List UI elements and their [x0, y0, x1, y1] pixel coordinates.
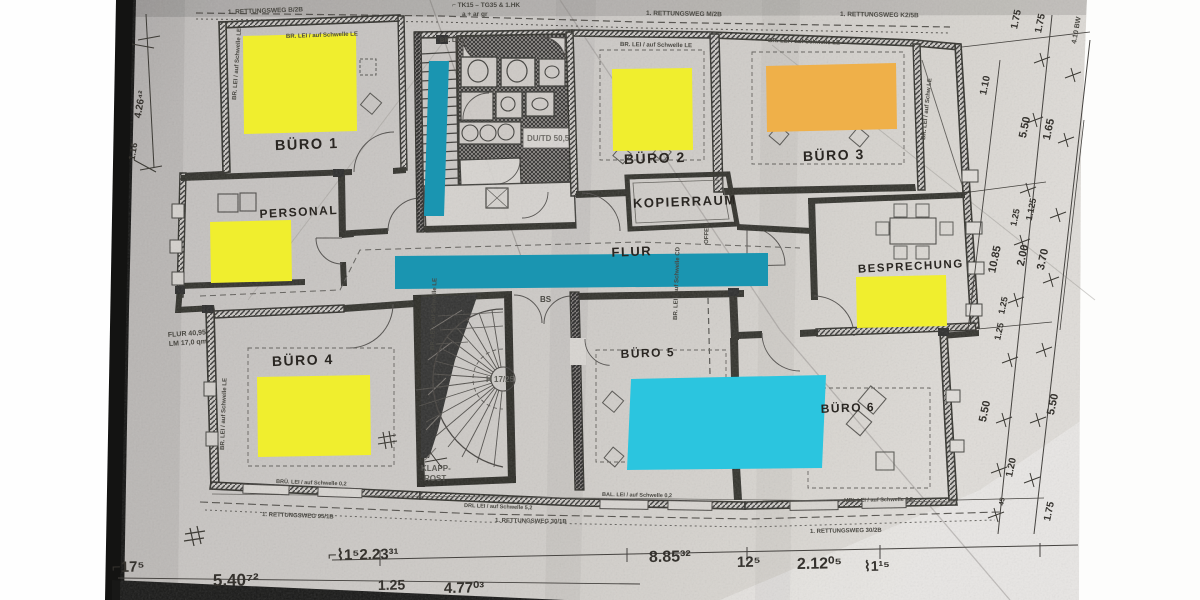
svg-text:BR. LEI: BR. LEI: [440, 38, 462, 44]
svg-text:BAL. LEI / auf Schwelle 0,2: BAL. LEI / auf Schwelle 0,2: [602, 492, 672, 499]
svg-text:⌐17⁵: ⌐17⁵: [112, 558, 145, 576]
svg-text:a + ar gr: a + ar gr: [462, 11, 488, 18]
svg-text:8.85³²: 8.85³²: [649, 548, 691, 566]
svg-text:1.25: 1.25: [378, 577, 406, 593]
svg-text:BS: BS: [540, 295, 552, 304]
svg-text:BR. LEI / auf Schwelle LE: BR. LEI / auf Schwelle LE: [620, 42, 692, 49]
svg-text:BÜRO 6: BÜRO 6: [820, 399, 875, 416]
svg-text:12⁵: 12⁵: [737, 554, 761, 571]
svg-text:⌐⌇1⁵2.23³¹: ⌐⌇1⁵2.23³¹: [328, 546, 399, 564]
svg-text:BÜRO 4: BÜRO 4: [272, 351, 334, 369]
svg-text:FLUR: FLUR: [611, 243, 652, 259]
svg-text:BÜRO 2: BÜRO 2: [624, 149, 686, 167]
svg-text:MBL LEI / auf Schwelle 0,2: MBL LEI / auf Schwelle 0,2: [844, 497, 913, 504]
svg-text:1. RETTUNGSWEG 30/2B: 1. RETTUNGSWEG 30/2B: [810, 528, 882, 535]
svg-text:OFFEN: OFFEN: [704, 224, 711, 245]
svg-text:⌇1¹⁵: ⌇1¹⁵: [864, 558, 890, 574]
svg-text:4.77⁰³: 4.77⁰³: [444, 579, 484, 597]
svg-text:⌐ TK15 – TG35 & 1.HK: ⌐ TK15 – TG35 & 1.HK: [452, 2, 520, 9]
svg-text:1. RETTUNGSWEG 30/1B: 1. RETTUNGSWEG 30/1B: [495, 518, 567, 525]
svg-text:BÜRO 3: BÜRO 3: [803, 146, 865, 164]
svg-text:BÜRO 5: BÜRO 5: [620, 344, 675, 361]
svg-text:1. RETTUNGSWEG K2/5B: 1. RETTUNGSWEG K2/5B: [840, 11, 919, 19]
svg-text:2.12⁰⁵: 2.12⁰⁵: [797, 555, 842, 573]
svg-text:BÜRO 1: BÜRO 1: [275, 135, 339, 154]
svg-text:1. RETTUNGSWEG M/2B: 1. RETTUNGSWEG M/2B: [646, 10, 722, 18]
svg-text:5.40⁷²: 5.40⁷²: [213, 570, 259, 590]
